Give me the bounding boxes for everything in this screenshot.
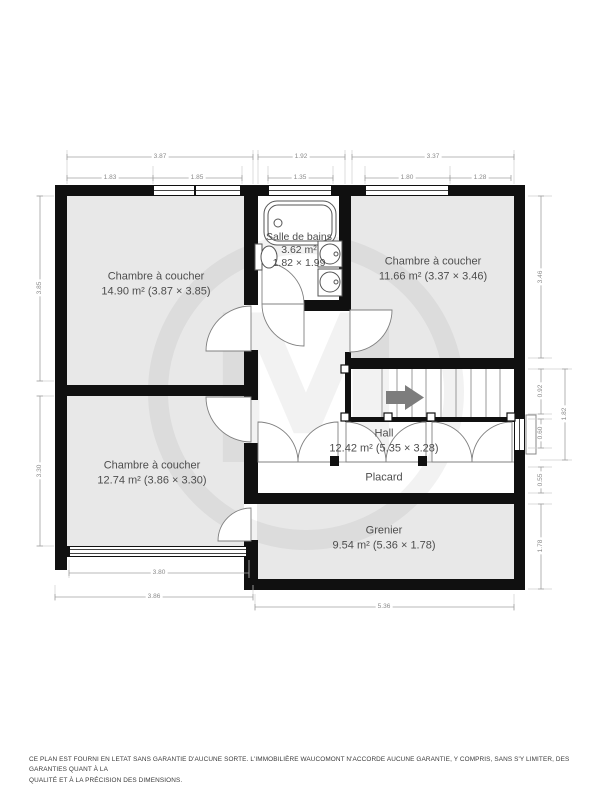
room-label-bedroom-2: Chambre à coucher 11.66 m² (3.37 × 3.46) [379,254,487,283]
room-size: 1.82 × 1.99 [266,256,332,269]
closet-door [472,422,512,462]
floor-plan: M [0,0,603,800]
room-name: Chambre à coucher [101,269,210,284]
room-label-bedroom-3: Chambre à coucher 12.74 m² (3.86 × 3.30) [97,458,206,487]
room-name: Chambre à coucher [97,458,206,473]
window-bottom-left [70,547,246,556]
dimension-label: 3.80 [151,570,168,577]
disclaimer-line-1: CE PLAN EST FOURNI EN LETAT SANS GARANTI… [29,755,581,776]
room-label-grenier: Grenier 9.54 m² (5.36 × 1.78) [332,523,435,552]
room-label-bathroom: Salle de bains 3.62 m² 1.82 × 1.99 [266,231,332,269]
window-top-left [152,186,242,195]
floor-plan-drawing: M [0,0,603,800]
room-name: Hall [329,426,438,441]
room-name: Chambre à coucher [379,254,487,269]
dimension-label: 0.55 [538,472,545,489]
room-area: 11.66 m² (3.37 × 3.46) [379,269,487,284]
room-label-hall: Hall 12.42 m² (5.35 × 3.28) [329,426,438,455]
dimension-label: 1.80 [399,175,416,182]
dimension-label: 1.82 [562,406,569,423]
dimension-label: 3.37 [425,154,442,161]
dimension-label: 1.28 [472,175,489,182]
window-top-right [364,186,450,195]
sink [318,269,342,296]
dimension-label: 1.78 [538,538,545,555]
dimension-label: 5.36 [376,604,393,611]
dimension-label: 1.35 [292,175,309,182]
dimension-label: 3.30 [37,463,44,480]
disclaimer-line-2: QUALITÉ ET À LA PRÉCISION DES DIMENSIONS… [29,776,581,786]
dimension-label: 1.92 [293,154,310,161]
dimension-label: 3.85 [37,280,44,297]
room-area: 9.54 m² (5.36 × 1.78) [332,538,435,553]
room-area: 12.74 m² (3.86 × 3.30) [97,473,206,488]
room-name: Placard [365,471,402,486]
disclaimer-text: CE PLAN EST FOURNI EN LETAT SANS GARANTI… [29,755,581,786]
dimension-label: 3.87 [152,154,169,161]
room-name: Grenier [332,523,435,538]
dimension-label: 0.60 [538,425,545,442]
room-name: Salle de bains [266,231,332,244]
room-area: 12.42 m² (5.35 × 3.28) [329,441,438,456]
room-area: 3.62 m² [266,244,332,257]
dimension-label: 3.86 [146,594,163,601]
dimension-label: 3.46 [538,269,545,286]
window-bathroom [267,186,333,195]
dimension-label: 1.85 [189,175,206,182]
dimension-label: 0.92 [538,383,545,400]
room-area: 14.90 m² (3.87 × 3.85) [101,284,210,299]
dimension-label: 1.83 [102,175,119,182]
room-label-placard: Placard [365,471,402,486]
room-label-bedroom-1: Chambre à coucher 14.90 m² (3.87 × 3.85) [101,269,210,298]
